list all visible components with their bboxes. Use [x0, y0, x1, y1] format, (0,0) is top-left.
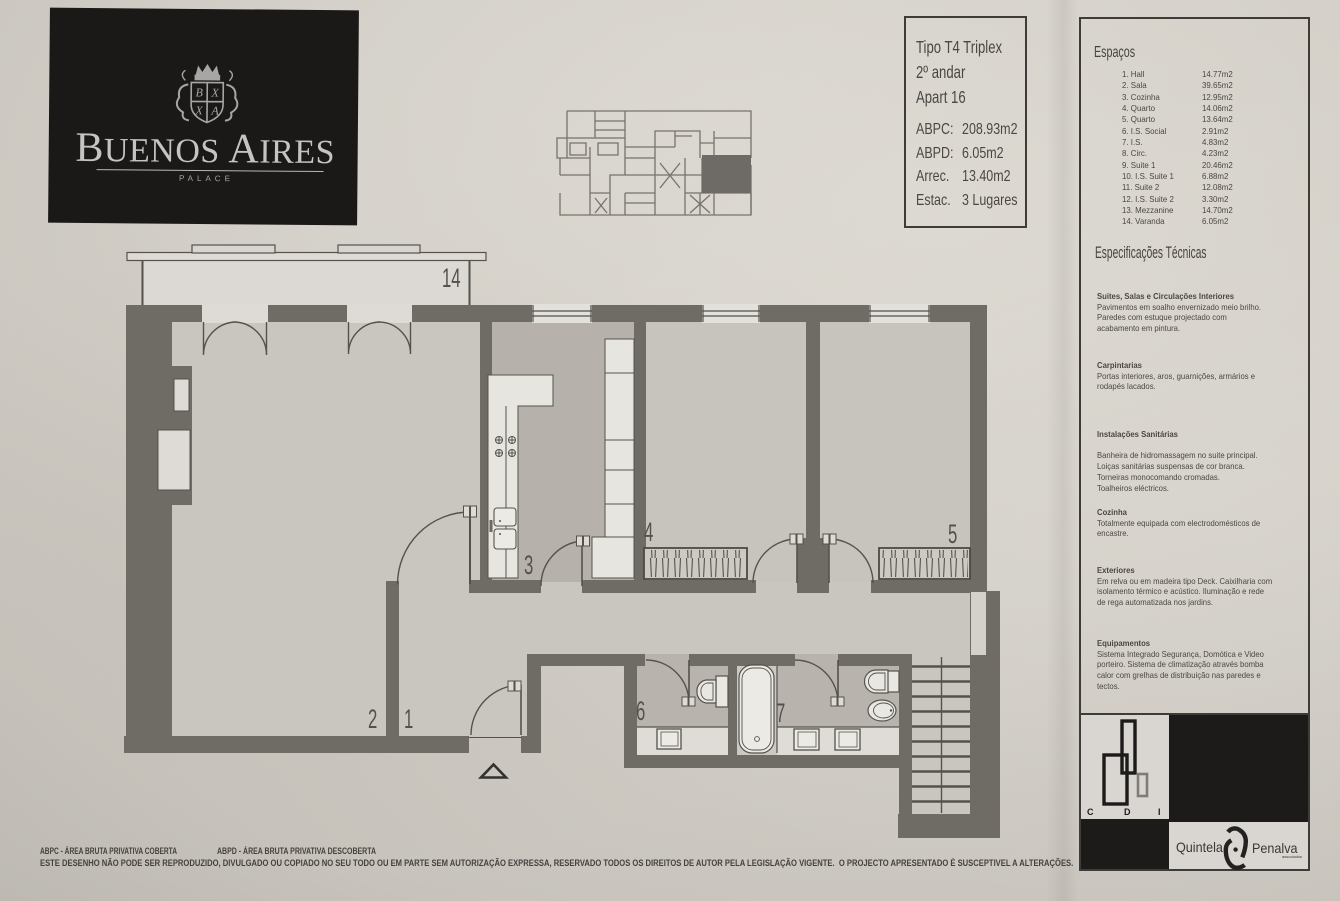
- svg-text:X: X: [194, 103, 203, 117]
- svg-text:A: A: [210, 104, 219, 118]
- svg-text:6: 6: [636, 696, 645, 726]
- svg-text:I: I: [1158, 807, 1161, 817]
- svg-text:7: 7: [776, 698, 785, 728]
- svg-text:C: C: [1087, 807, 1094, 817]
- svg-text:1: 1: [404, 704, 413, 734]
- svg-text:14: 14: [442, 263, 461, 293]
- svg-text:X: X: [210, 86, 219, 100]
- svg-text:B: B: [195, 85, 203, 99]
- svg-text:2: 2: [368, 704, 377, 734]
- svg-text:D: D: [1124, 807, 1131, 817]
- svg-text:3: 3: [524, 550, 533, 580]
- svg-text:5: 5: [948, 519, 957, 549]
- svg-text:4: 4: [644, 517, 653, 547]
